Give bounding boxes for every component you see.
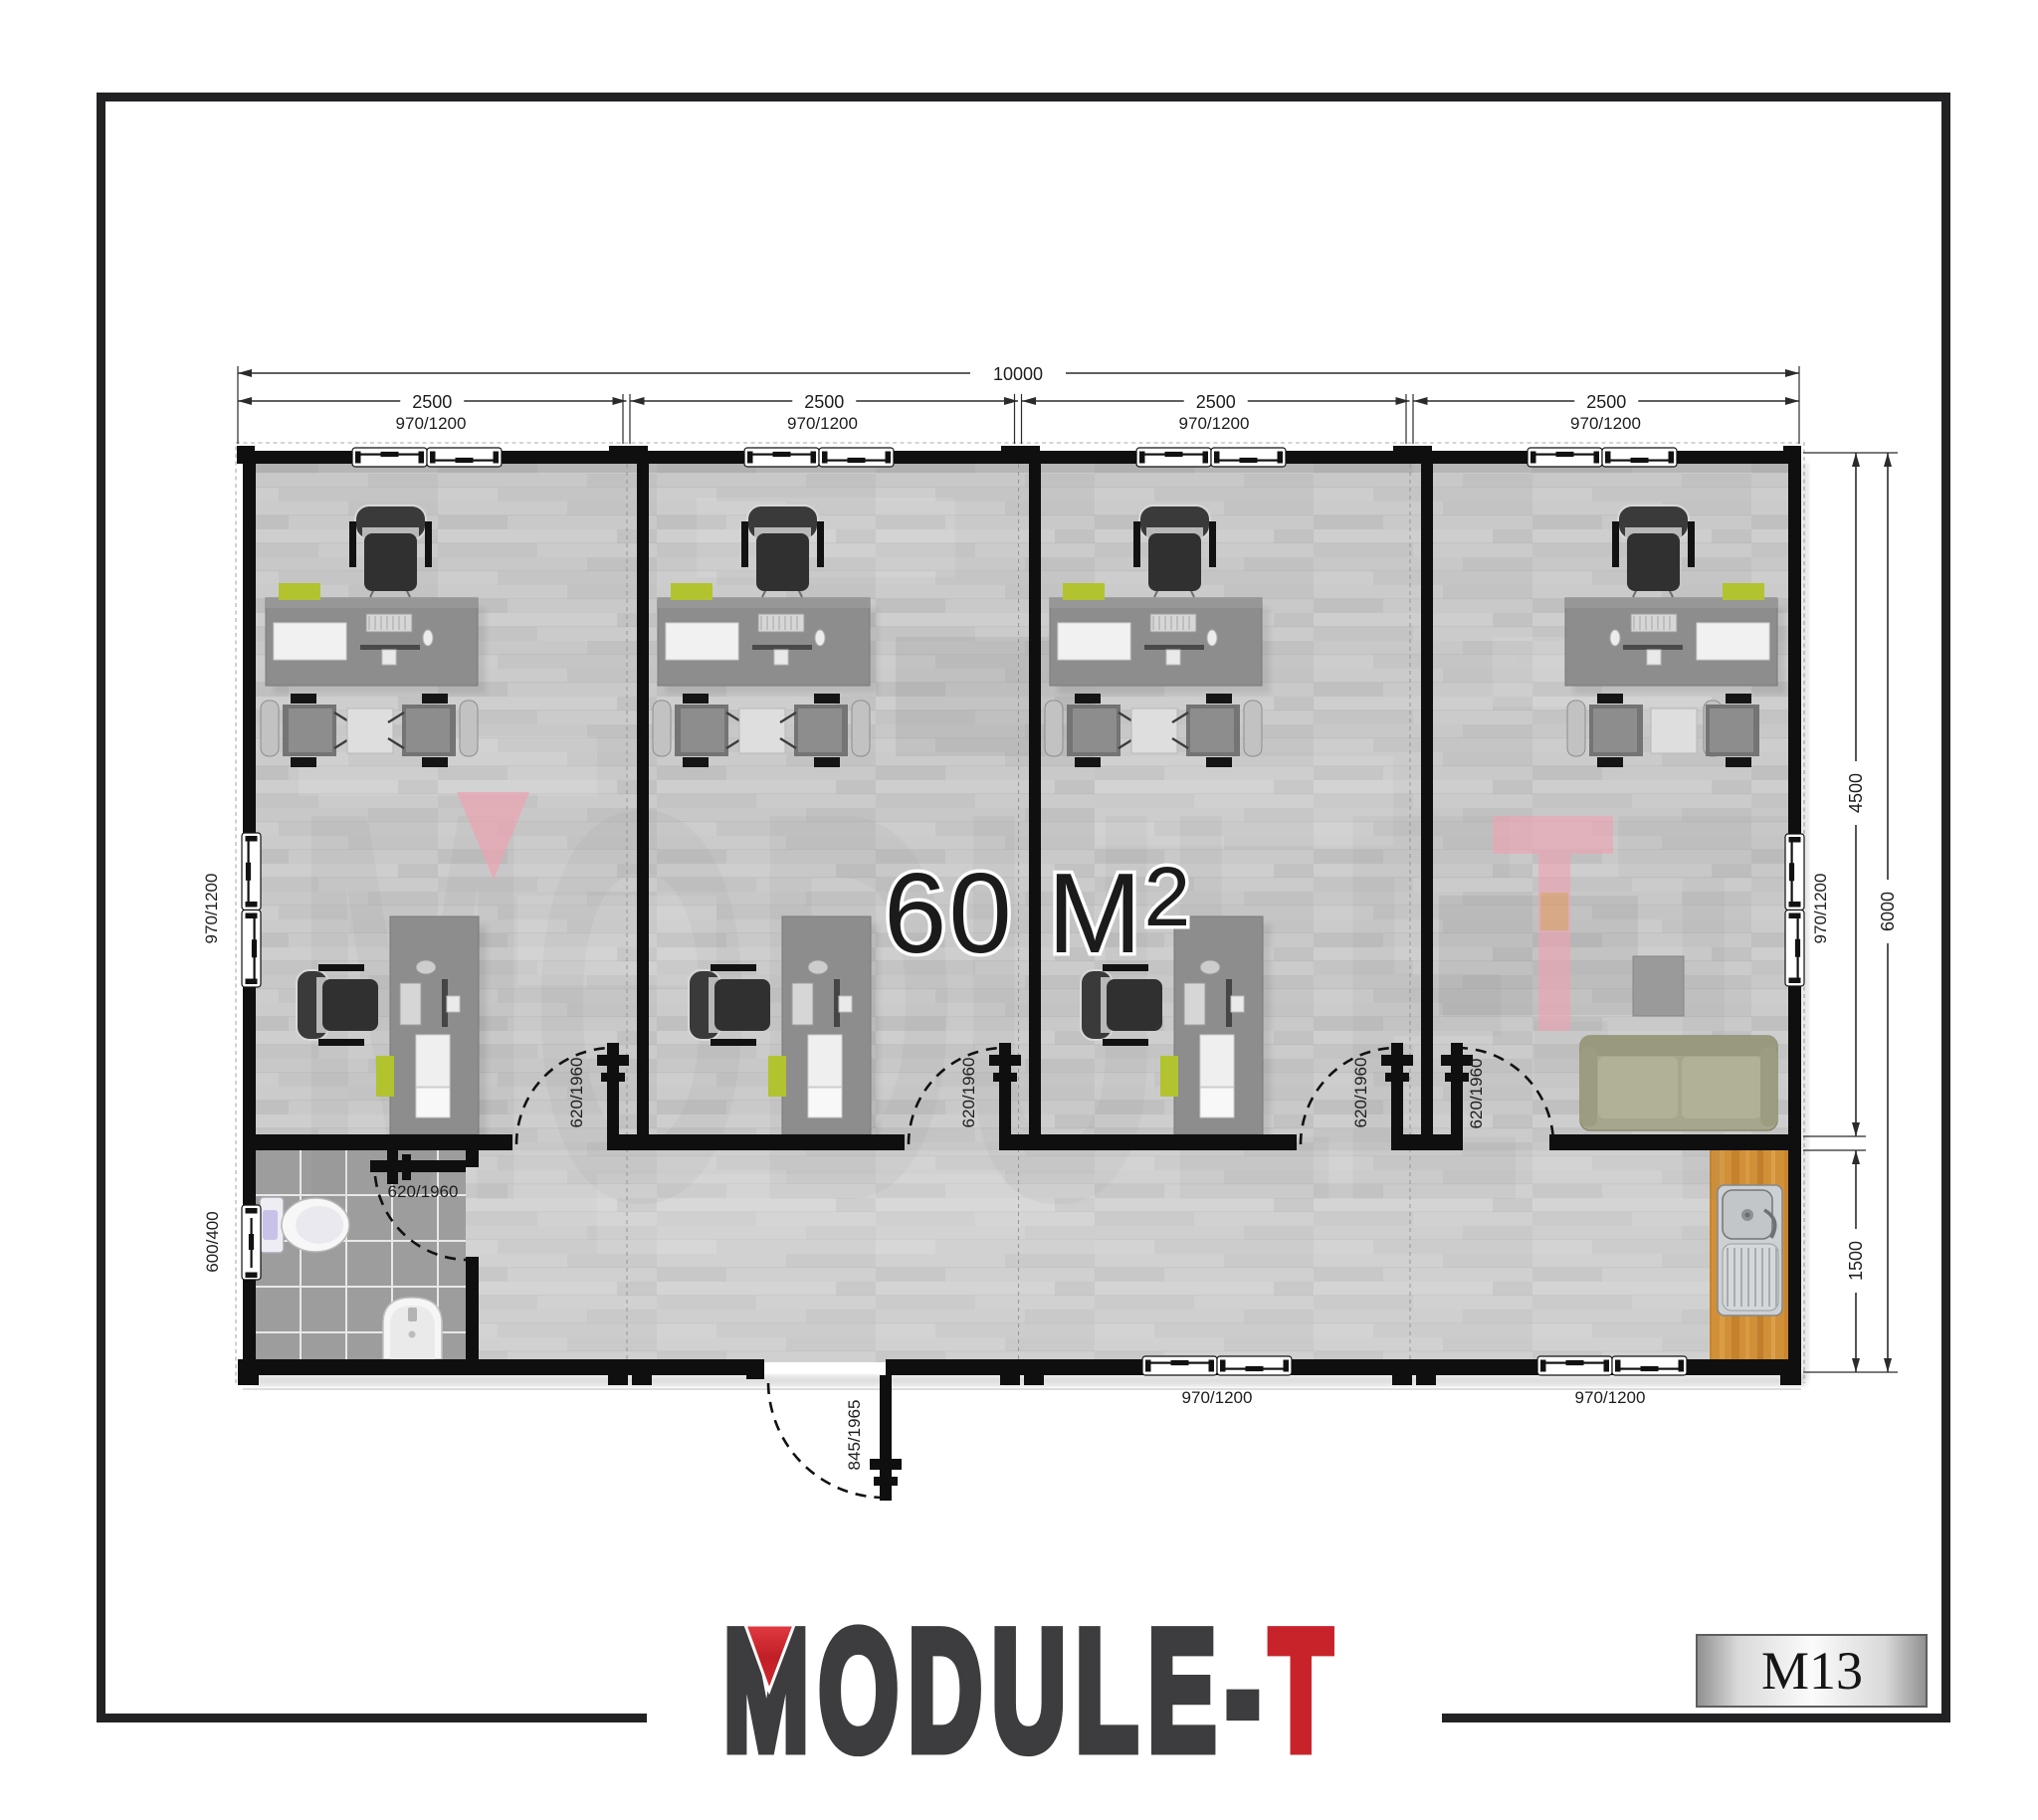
svg-text:M13: M13 [1761,1641,1863,1701]
svg-text:620/1960: 620/1960 [1351,1058,1370,1128]
svg-text:970/1200: 970/1200 [1811,874,1830,944]
svg-text:620/1960: 620/1960 [388,1182,459,1201]
svg-text:600/400: 600/400 [203,1211,222,1272]
svg-text:970/1200: 970/1200 [396,414,467,433]
svg-text:970/1200: 970/1200 [202,874,221,944]
svg-text:4500: 4500 [1846,773,1866,813]
svg-text:620/1960: 620/1960 [1467,1059,1486,1129]
svg-text:MODULE-T: MODULE-T [723,1596,1341,1787]
svg-text:1500: 1500 [1846,1241,1866,1281]
svg-text:970/1200: 970/1200 [787,414,858,433]
svg-text:845/1965: 845/1965 [845,1400,864,1471]
svg-text:970/1200: 970/1200 [1570,414,1641,433]
svg-text:10000: 10000 [993,364,1043,384]
svg-text:2500: 2500 [412,392,452,412]
svg-text:6000: 6000 [1878,892,1898,931]
svg-text:2500: 2500 [1196,392,1236,412]
svg-text:970/1200: 970/1200 [1179,414,1250,433]
svg-text:970/1200: 970/1200 [1182,1388,1253,1407]
svg-text:620/1960: 620/1960 [959,1058,978,1128]
svg-text:970/1200: 970/1200 [1575,1388,1646,1407]
svg-text:2500: 2500 [804,392,844,412]
svg-text:2500: 2500 [1586,392,1626,412]
svg-text:620/1960: 620/1960 [567,1058,586,1128]
